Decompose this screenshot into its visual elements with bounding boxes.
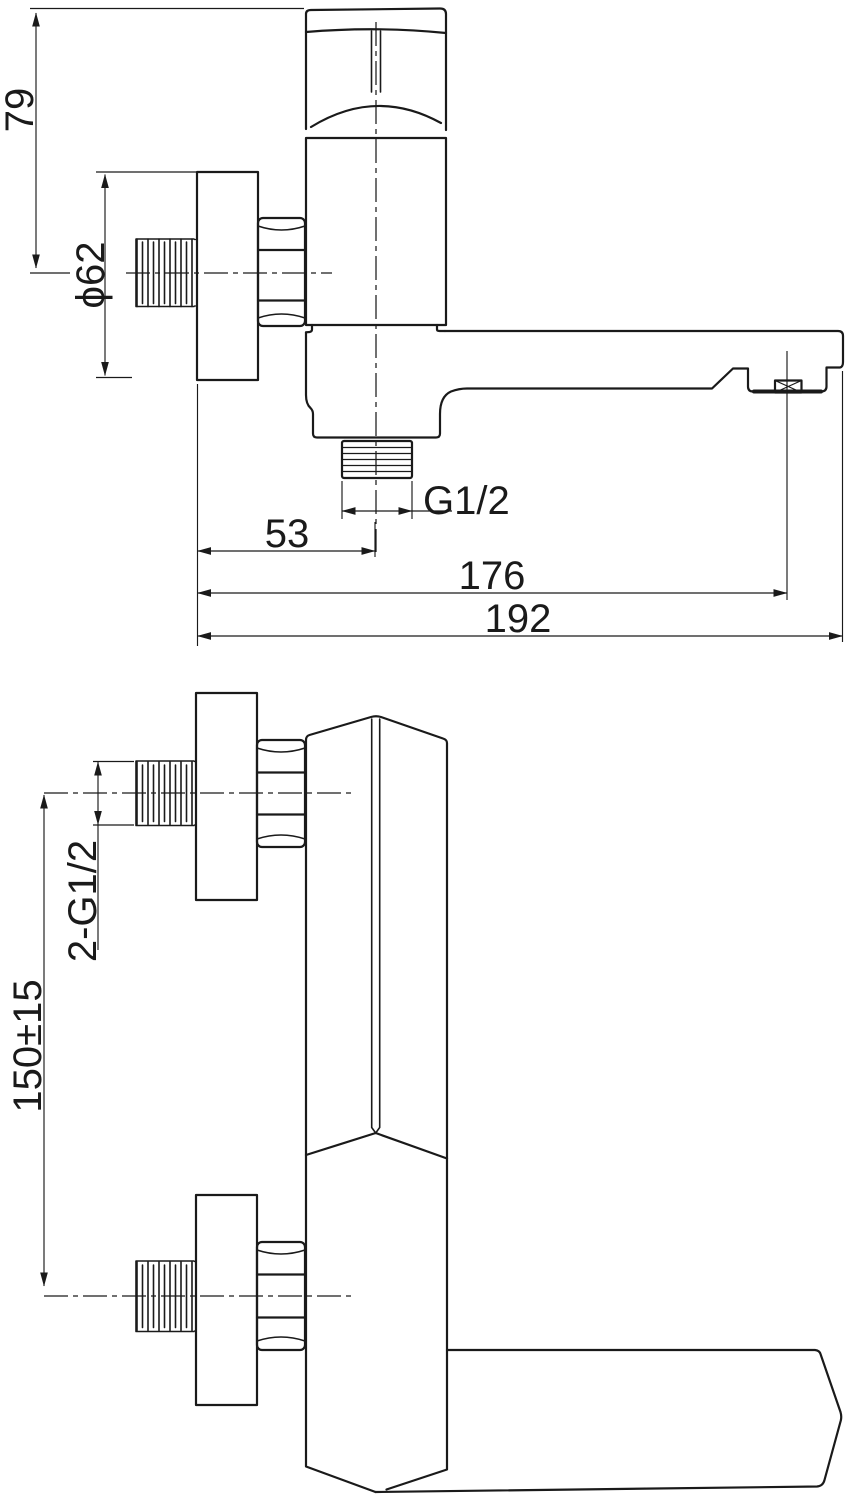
dimension-label-2g12: 2-G1/2 bbox=[61, 840, 105, 962]
faucet-technical-drawing: 79 ϕ62 G1/2 53 176 192 bbox=[0, 0, 852, 1500]
technical-drawing-sheet: 79 ϕ62 G1/2 53 176 192 bbox=[0, 0, 852, 1500]
dimension-label-diameter-62: ϕ62 bbox=[69, 242, 113, 309]
dimension-label-53: 53 bbox=[265, 512, 310, 556]
dimension-label-176: 176 bbox=[459, 554, 526, 598]
dimension-label-79: 79 bbox=[0, 88, 42, 133]
dimension-label-150: 150±15 bbox=[6, 979, 50, 1112]
dimension-label-192: 192 bbox=[485, 597, 552, 641]
sheet-background bbox=[0, 0, 852, 1500]
dimension-label-g12: G1/2 bbox=[423, 479, 510, 523]
